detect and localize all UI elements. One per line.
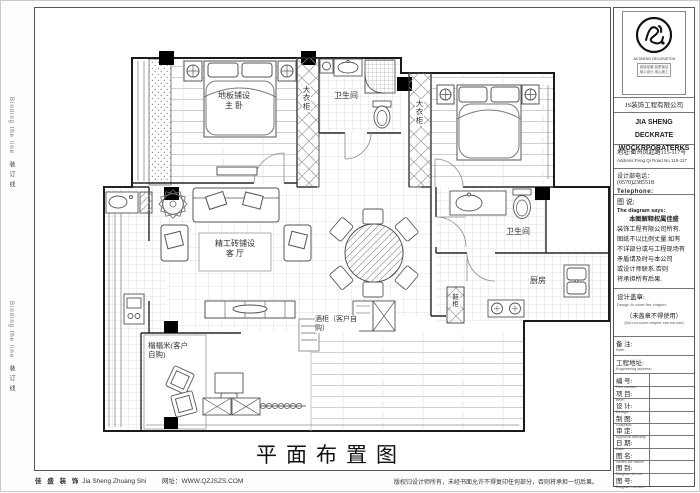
field-row-drafting: 制 图:Graphics: <box>614 412 694 424</box>
hanger-rail <box>260 403 306 408</box>
room-label-living: 精工砖铺设 客 厅 <box>205 239 265 259</box>
field-value <box>650 436 694 447</box>
notes-title-en: The diagram says: <box>617 208 691 214</box>
logo-tagline-2: 用心设计 用心施工 <box>640 70 669 75</box>
notes-title-cn: 图 说: <box>617 197 691 207</box>
footer-website: 网址：WWW.QZJSZS.COM <box>162 478 243 485</box>
company-name-en: JIA SHENG DECKRATE WOCKRPORATERKS <box>614 113 694 145</box>
field-value <box>650 424 694 435</box>
field-row-approval: 审 定:Approval officially: <box>614 424 694 436</box>
seal-warning-en: (Did not cover chapter can not use) <box>617 321 691 325</box>
field-value <box>650 449 694 460</box>
room-label-bath-top: 卫生间 <box>327 91 365 101</box>
field-row-number: 编 号:Plot number: <box>614 374 694 386</box>
footer-brand-pinyin: Jia Sheng Zhuang Shi <box>82 478 146 485</box>
title-block: JIA SHENG DECORATION 诚信经营 品质保证 用心设计 用心施工… <box>613 7 695 487</box>
room-label-wardrobe-2: 大衣柜 <box>415 99 424 126</box>
room-label-kitchen: 厨房 <box>523 276 553 286</box>
dining-table <box>345 224 403 282</box>
sofa <box>193 188 279 222</box>
field-row-drawing-type: 图 别:Diagram do not: <box>614 461 694 473</box>
seal-title-cn: 设计盖章: <box>617 291 691 301</box>
footer-brand: 佳 盛 装 饰 Jia Sheng Zhuang Shi 网址：WWW.QZJS… <box>35 475 243 485</box>
field-value <box>650 399 694 410</box>
textured-feature-wall <box>149 59 171 185</box>
floor-plan-drawing <box>1 1 700 493</box>
room-label-tatami: 榻榻米(客户自购) <box>148 341 194 360</box>
company-name-cn: JS装饰工程有限公司 <box>614 98 694 113</box>
stove <box>488 300 524 317</box>
tatami-room-furniture <box>165 365 306 417</box>
field-row-item: 项 目:Item: <box>614 387 694 399</box>
field-row-design: 设 计:Design: <box>614 399 694 411</box>
logo-section: JIA SHENG DECORATION 诚信经营 品质保证 用心设计 用心施工 <box>614 8 694 98</box>
phone-cn: 设计部电话： (0570)2385518 <box>617 171 691 186</box>
drawing-sheet: Binding the line 装订线 Binding the line 装订… <box>0 0 700 492</box>
field-row-address: 工程地址: Engineering address: <box>614 356 694 375</box>
room-label-master-bedroom: 地板铺设 主 卧 <box>203 91 265 111</box>
logo-caption: JIA SHENG DECORATION <box>633 57 675 61</box>
field-value <box>650 374 694 385</box>
field-row-drawing-number: 图 号:Diagram number: <box>614 474 694 486</box>
design-seal-section: 设计盖章: Design to cover the chapter: （未盖章不… <box>614 289 694 337</box>
desk <box>215 373 243 393</box>
field-value <box>650 474 694 486</box>
field-value <box>650 461 694 472</box>
bench <box>217 167 257 175</box>
label-shoe-cabinet: 鞋柜 <box>451 293 460 309</box>
wine-cabinet <box>353 301 395 331</box>
field-row-note: 备 注: Note: <box>614 337 694 356</box>
seal-title-en: Design to cover the chapter: <box>617 302 691 307</box>
field-value <box>650 387 694 398</box>
drawing-title: 平面布置图 <box>231 439 431 469</box>
seal-warning-cn: （未盖章不得使用） <box>617 311 691 320</box>
logo-tagline-box: 诚信经营 品质保证 用心设计 用心施工 <box>637 63 672 77</box>
footer-copyright: 版权归设计师所有，未经书面允许不得复印任何部分，否则将承担一切后果。 <box>394 477 598 486</box>
company-logo-icon <box>633 14 675 56</box>
diagram-notes-section: 图 说: The diagram says: 本图解释权属佳盛 装饰工程有限公司… <box>614 195 694 289</box>
bathroom-right-fixtures <box>450 189 531 219</box>
logo-box: JIA SHENG DECORATION 诚信经营 品质保证 用心设计 用心施工 <box>622 11 686 95</box>
field-row-drawing-name: 图 名:Series for Name: <box>614 449 694 461</box>
phone-section: 设计部电话： (0570)2385518 Telephone: <box>614 169 694 195</box>
room-label-wardrobe-1: 大衣柜 <box>302 85 311 112</box>
address-cn: 地址:衢州凤起路115-117号 <box>617 147 691 156</box>
address-section: 地址:衢州凤起路115-117号 Address:Feng Qi Road No… <box>614 145 694 169</box>
tv-icon <box>233 305 267 313</box>
footer-brand-cn: 佳 盛 装 饰 <box>35 478 80 485</box>
label-wine-cabinet: 酒柜（客户自购） <box>315 315 359 333</box>
address-en: Address:Feng Qi Road No.115-117 <box>617 158 691 163</box>
room-label-bath-right: 卫生间 <box>499 227 537 237</box>
field-row-date: 日 期:Date: <box>614 436 694 448</box>
field-value <box>650 412 694 423</box>
